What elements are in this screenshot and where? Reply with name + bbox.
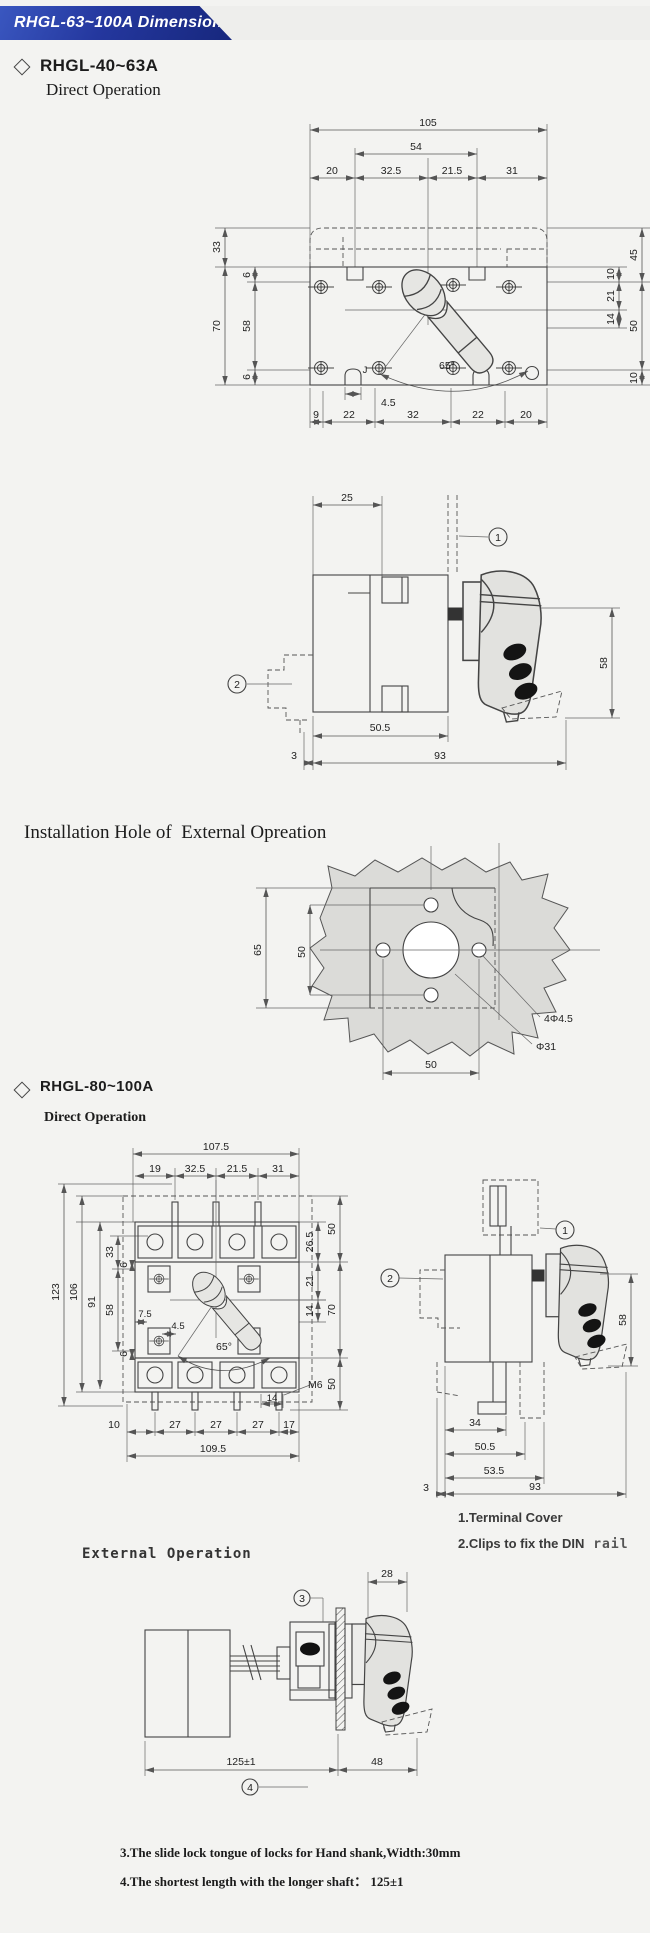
switch-body-side bbox=[420, 1255, 544, 1418]
dim-label: 27 bbox=[210, 1419, 222, 1431]
dimension-labels: 105 54 20 32.5 21.5 31 33 70 6 58 6 45 1… bbox=[211, 117, 640, 421]
extension-lines bbox=[437, 1274, 638, 1498]
dim-label: 31 bbox=[506, 165, 518, 177]
section2-title: RHGL-80~100A bbox=[40, 1078, 154, 1095]
dim-label: 6 bbox=[241, 374, 253, 380]
dim-label: 50.5 bbox=[475, 1441, 496, 1453]
dim-label: 6 bbox=[118, 1351, 130, 1357]
dim-label: 93 bbox=[529, 1481, 541, 1493]
dim-label: 34 bbox=[469, 1417, 481, 1429]
dim-label: 27 bbox=[252, 1419, 264, 1431]
dim-label: 3 bbox=[423, 1482, 429, 1494]
drawing-40-63a-front: 105 54 20 32.5 21.5 31 33 70 6 58 6 45 1… bbox=[195, 110, 650, 445]
note-din-clips-suffix: rail bbox=[584, 1537, 628, 1552]
dim-label: 91 bbox=[86, 1296, 98, 1308]
note-shortest-length: 4.The shortest length with the longer sh… bbox=[120, 1871, 404, 1890]
switch-body-side bbox=[268, 495, 463, 734]
dim-label: 3 bbox=[291, 750, 297, 762]
dim-label: 50 bbox=[296, 946, 308, 958]
drawing-installation-hole: 65 50 50 4Φ4.5 Φ31 bbox=[170, 828, 650, 1093]
dim-label: 58 bbox=[241, 320, 253, 332]
dim-label: 109.5 bbox=[200, 1443, 226, 1455]
section1-subtitle: Direct Operation bbox=[46, 80, 161, 100]
note-terminal-cover: 1.Terminal Cover bbox=[458, 1510, 563, 1525]
catalog-page: RHGL-63~100A Dimension RHGL-40~63A Direc… bbox=[0, 0, 650, 1933]
handle-side bbox=[352, 1616, 432, 1735]
drawing-40-63a-side: 1 2 25 58 50.5 3 93 bbox=[180, 480, 640, 780]
callout-4: 4 bbox=[247, 1782, 253, 1794]
dim-label: 10 bbox=[605, 268, 617, 280]
extension-lines bbox=[304, 496, 620, 770]
handle-side bbox=[546, 1245, 627, 1369]
callout-3: 3 bbox=[299, 1593, 305, 1605]
dim-label: 19 bbox=[149, 1163, 161, 1175]
extension-lines bbox=[58, 1148, 348, 1462]
dim-label: 14 bbox=[304, 1305, 316, 1317]
shaft bbox=[230, 1645, 290, 1680]
dim-label: 50 bbox=[425, 1059, 437, 1071]
dim-label: 58 bbox=[104, 1304, 116, 1316]
callout-2: 2 bbox=[387, 1273, 393, 1285]
section2-subtitle: Direct Operation bbox=[44, 1110, 146, 1126]
dim-label: 106 bbox=[68, 1283, 80, 1301]
angle-label: 65° bbox=[439, 360, 455, 372]
dim-label: 48 bbox=[371, 1756, 383, 1768]
dim-label: 10 bbox=[628, 372, 640, 384]
dim-label: 45 bbox=[628, 249, 640, 261]
dim-label: 70 bbox=[326, 1304, 338, 1316]
handle-side bbox=[463, 571, 562, 722]
dim-label: 93 bbox=[434, 750, 446, 762]
dim-label: 14 bbox=[605, 313, 617, 325]
callout-1: 1 bbox=[562, 1225, 568, 1237]
dim-label: 26.5 bbox=[304, 1232, 316, 1253]
dimension-labels: 107.5 19 32.5 21.5 31 123 106 91 58 33 6… bbox=[50, 1141, 338, 1455]
holes-label: 4Φ4.5 bbox=[544, 1013, 573, 1025]
dim-label: 21.5 bbox=[442, 165, 463, 177]
thread-label: M6 bbox=[308, 1379, 323, 1391]
dim-label: 6 bbox=[241, 272, 253, 278]
page-title: RHGL-63~100A Dimension bbox=[14, 14, 222, 31]
dim-label: 32 bbox=[407, 409, 419, 421]
terminal-cover-top bbox=[483, 1180, 538, 1255]
callout-1: 1 bbox=[495, 532, 501, 544]
mounting-plate bbox=[329, 1608, 352, 1730]
note-din-clips: 2.Clips to fix the DIN rail bbox=[458, 1536, 629, 1552]
dim-label: 33 bbox=[104, 1246, 116, 1258]
dim-label: 50 bbox=[326, 1378, 338, 1390]
dim-label: 20 bbox=[326, 165, 338, 177]
dim-label: 58 bbox=[598, 657, 610, 669]
dim-label: 17 bbox=[283, 1419, 295, 1431]
angle-label: 65° bbox=[216, 1341, 232, 1353]
dimension-labels: 25 58 50.5 3 93 bbox=[291, 492, 610, 762]
dim-label: 54 bbox=[410, 141, 422, 153]
dim-label: 105 bbox=[419, 117, 437, 129]
dim-label: 50.5 bbox=[370, 722, 391, 734]
dim-label: 10 bbox=[108, 1419, 120, 1431]
dim-label: 21 bbox=[605, 290, 617, 302]
dim-label: 4.5 bbox=[381, 397, 396, 409]
dim-label: 31 bbox=[272, 1163, 284, 1175]
diamond-bullet bbox=[14, 59, 31, 76]
drawing-external-operation: 3 4 28 125±1 48 bbox=[80, 1560, 640, 1805]
header-banner: RHGL-63~100A Dimension bbox=[0, 6, 232, 40]
dim-label: 33 bbox=[211, 241, 223, 253]
dim-label: 58 bbox=[617, 1314, 629, 1326]
dim-label: 22 bbox=[343, 409, 355, 421]
callouts: 1 2 bbox=[381, 1221, 574, 1287]
dim-label: 28 bbox=[381, 1568, 393, 1580]
dim-label: 107.5 bbox=[203, 1141, 229, 1153]
dim-label: 9 bbox=[313, 409, 319, 421]
dim-label: 53.5 bbox=[484, 1465, 505, 1477]
diameter-label: Φ31 bbox=[536, 1041, 556, 1053]
note-din-clips-main: 2.Clips to fix the DIN bbox=[458, 1536, 584, 1551]
dim-label: 14 bbox=[267, 1393, 278, 1404]
dim-label: 20 bbox=[520, 409, 532, 421]
dim-label: 32.5 bbox=[381, 165, 402, 177]
lock-mechanism bbox=[290, 1622, 335, 1700]
dim-label: 21.5 bbox=[227, 1163, 248, 1175]
dim-label: 32.5 bbox=[185, 1163, 206, 1175]
dim-label: 7.5 bbox=[138, 1309, 151, 1320]
dim-label: 50 bbox=[628, 320, 640, 332]
dim-label: 70 bbox=[211, 320, 223, 332]
dim-label: 65 bbox=[252, 944, 264, 956]
dim-label: 125±1 bbox=[226, 1756, 255, 1768]
diamond-bullet bbox=[14, 1082, 31, 1099]
callout-2: 2 bbox=[234, 679, 240, 691]
drawing-80-100a-side: 1 2 bbox=[360, 1150, 650, 1500]
drawing-80-100a-front: 107.5 19 32.5 21.5 31 123 106 91 58 33 6… bbox=[50, 1140, 370, 1480]
note-slide-lock: 3.The slide lock tongue of locks for Han… bbox=[120, 1845, 460, 1861]
dim-label: 21 bbox=[304, 1275, 316, 1287]
dim-label: 25 bbox=[341, 492, 353, 504]
section1-title: RHGL-40~63A bbox=[40, 56, 158, 76]
dim-label: 123 bbox=[50, 1283, 62, 1301]
dim-label: 27 bbox=[169, 1419, 181, 1431]
dim-label: 6 bbox=[118, 1262, 130, 1268]
dim-label: 4.5 bbox=[171, 1321, 184, 1332]
dim-label: 22 bbox=[472, 409, 484, 421]
motor-box bbox=[145, 1630, 230, 1737]
dim-label: 50 bbox=[326, 1223, 338, 1235]
j-label: J bbox=[363, 365, 368, 376]
